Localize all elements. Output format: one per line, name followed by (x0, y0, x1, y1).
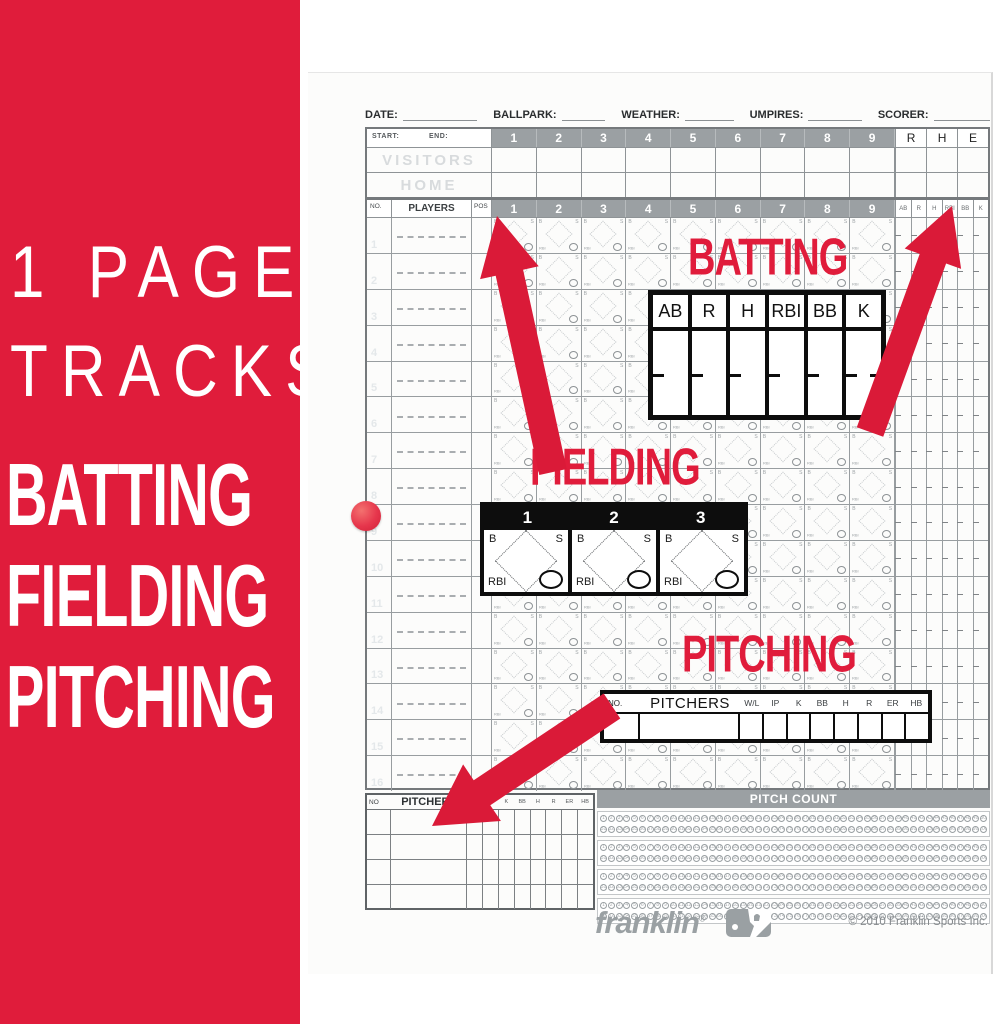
pitch-bubble: 40 (902, 844, 909, 851)
pitch-bubble: 93 (926, 826, 933, 833)
ball-mark: B (673, 219, 676, 225)
diamond-icon (500, 436, 527, 463)
batter-row: 12BSRBIBSRBIBSRBIBSRBIBSRBIBSRBIBSRBIBSR… (367, 612, 988, 648)
diamond-icon (724, 472, 751, 499)
pos-column-header: POS (472, 200, 492, 217)
tally-tick (895, 630, 901, 631)
strike-mark: S (530, 219, 533, 225)
inning-scoring-cell: BSRBI (761, 505, 806, 540)
pitch-bubble: 32 (840, 902, 847, 909)
circle-icon (792, 422, 801, 430)
rbi-mark: RBI (584, 605, 591, 610)
strike-mark: S (530, 255, 533, 261)
linescore-total-header: H (926, 129, 957, 147)
ball-mark: B (584, 614, 587, 620)
circle-icon (613, 602, 622, 610)
pitch-bubble: 78 (809, 826, 816, 833)
pitch-bubble: 75 (786, 826, 793, 833)
inning-score-cell (850, 148, 895, 172)
stat-cell (957, 541, 973, 576)
tally-tick (957, 558, 963, 559)
circle-icon (792, 458, 801, 466)
pitch-bubble: 61 (678, 855, 685, 862)
inning-score-cell (716, 173, 761, 197)
faint-row-number: 16 (371, 777, 383, 789)
inning-scoring-cell: BSRBI (761, 541, 806, 576)
pitch-bubble: 51 (600, 855, 607, 862)
pitch-bubble: 31 (833, 815, 840, 822)
rbi-mark: RBI (584, 712, 591, 717)
inning-scoring-cell: BSRBI (537, 720, 582, 755)
pitch-bubble: 15 (709, 873, 716, 880)
tally-tick (973, 522, 979, 523)
ball-mark: B (763, 542, 766, 548)
pitch-bubble: 38 (887, 873, 894, 880)
rbi-mark: RBI (494, 712, 501, 717)
name-dash-line (397, 559, 467, 561)
pitch-bubble: 60 (670, 884, 677, 891)
pitcher-stat-cell (578, 835, 593, 859)
inning-scoring-cell: BSRBI (537, 397, 582, 432)
name-dash-line (397, 667, 467, 669)
rbi-mark: RBI (488, 576, 506, 588)
circle-icon (658, 243, 667, 251)
strike-mark: S (665, 219, 668, 225)
inning-scoring-cell: BSRBI (850, 613, 895, 648)
stat-cell (973, 577, 989, 612)
diamond-icon (590, 615, 617, 642)
pitch-bubble: 27 (802, 844, 809, 851)
pitch-bubble: 28 (809, 844, 816, 851)
stat-cell (957, 397, 973, 432)
pitch-bubble: 100 (980, 855, 987, 862)
pitch-bubble: 28 (809, 873, 816, 880)
pitch-bubble: 47 (957, 844, 964, 851)
pitch-bubble: 19 (740, 873, 747, 880)
pitch-bubble: 24 (778, 844, 785, 851)
stat-cell (942, 218, 958, 253)
position-cell (472, 613, 492, 648)
inning-scoring-cell: BSRBI (850, 577, 895, 612)
stat-cell (973, 541, 989, 576)
pitch-bubble: 34 (856, 873, 863, 880)
pitch-bubble: 86 (871, 884, 878, 891)
strike-mark: S (530, 650, 533, 656)
circle-icon (882, 566, 891, 574)
diamond-icon (545, 651, 572, 678)
pitch-count-line: 5152535455565758596061626364656667686970… (600, 824, 987, 835)
ball-mark: B (539, 685, 542, 691)
strike-mark: S (844, 470, 847, 476)
position-cell (472, 218, 492, 253)
pitch-bubble: 67 (724, 884, 731, 891)
pitch-bubble: 48 (964, 873, 971, 880)
fielding-callout-box: 123 BSRBIBSRBIBSRBI (480, 502, 748, 596)
pitching-stat-header: R (858, 698, 882, 708)
strike-mark: S (889, 434, 892, 440)
tally-tick (942, 451, 948, 452)
strike-mark: S (889, 614, 892, 620)
rbi-mark: RBI (763, 461, 770, 466)
strike-mark: S (620, 327, 623, 333)
diamond-icon (635, 759, 662, 786)
pitch-bubble: 11 (678, 815, 685, 822)
pitch-bubble: 62 (685, 884, 692, 891)
tally-tick (957, 415, 963, 416)
diamond-icon (814, 472, 841, 499)
diamond-icon (814, 543, 841, 570)
ball-mark: B (807, 578, 810, 584)
rbi-mark: RBI (628, 677, 635, 682)
inning-scoring-cell: BSRBI (850, 756, 895, 791)
name-dash-line (397, 236, 467, 238)
linescore-inning-header: 2 (537, 129, 582, 147)
pitch-bubble: 41 (910, 844, 917, 851)
rbi-mark: RBI (494, 390, 501, 395)
linescore-inning-header: 3 (582, 129, 627, 147)
pitcher-stat-cell (483, 810, 499, 834)
batter-number-cell: 7 (367, 433, 392, 468)
strike-mark: S (575, 363, 578, 369)
pitch-bubble: 38 (887, 902, 894, 909)
batter-number-cell: 8 (367, 469, 392, 504)
ball-mark: B (539, 291, 542, 297)
pitch-bubble: 5 (631, 873, 638, 880)
tally-tick (911, 630, 917, 631)
ball-mark: B (807, 614, 810, 620)
circle-icon (613, 243, 622, 251)
pitchers-table-body (367, 810, 593, 909)
pitch-bubble: 100 (980, 884, 987, 891)
strike-mark: S (732, 533, 739, 545)
pitch-bubble: 38 (887, 844, 894, 851)
rbi-mark: RBI (673, 425, 680, 430)
pitch-bubble: 5 (631, 815, 638, 822)
pitch-bubble: 20 (747, 844, 754, 851)
pitch-bubble: 94 (933, 826, 940, 833)
pitch-bubble: 50 (980, 815, 987, 822)
strike-mark: S (754, 219, 757, 225)
circle-icon (524, 351, 533, 359)
faint-row-number: 8 (371, 490, 377, 502)
strike-mark: S (530, 757, 533, 763)
field-underline (685, 111, 734, 121)
field-label: BALLPARK: (493, 110, 556, 121)
pitch-bubble: 15 (709, 844, 716, 851)
stat-cell (942, 577, 958, 612)
pitch-bubble: 13 (693, 873, 700, 880)
pitch-bubble: 47 (957, 873, 964, 880)
pitch-bubble: 60 (670, 826, 677, 833)
circle-icon (613, 673, 622, 681)
tally-tick (926, 487, 932, 488)
circle-icon (569, 745, 578, 753)
pitch-bubble: 88 (887, 884, 894, 891)
stat-cell (895, 290, 911, 325)
pitch-bubble: 45 (941, 844, 948, 851)
tally-tick (926, 379, 932, 380)
inning-score-cell (537, 173, 582, 197)
pitch-bubble: 49 (972, 844, 979, 851)
pitch-bubble: 29 (817, 902, 824, 909)
strike-mark: S (575, 685, 578, 691)
pitch-bubble: 52 (608, 884, 615, 891)
stat-cell (895, 433, 911, 468)
rbi-mark: RBI (539, 354, 546, 359)
inning-score-cell (492, 148, 537, 172)
pitch-bubble: 51 (600, 884, 607, 891)
stat-cell (957, 254, 973, 289)
inning-scoring-cell: BSRBI (850, 433, 895, 468)
strike-mark: S (620, 614, 623, 620)
strike-mark: S (530, 721, 533, 727)
stat-cell (926, 756, 942, 791)
player-name-cell (392, 577, 472, 612)
pitcher-stat-cell (499, 810, 515, 834)
batter-number-cell: 13 (367, 649, 392, 684)
stat-column-header: RBI (942, 200, 958, 217)
linescore-inning-header: 9 (850, 129, 895, 147)
tally-tick (926, 558, 932, 559)
tally-tick (942, 343, 948, 344)
inning-scoring-cell: BSRBI (671, 756, 716, 791)
pitch-bubble: 85 (864, 884, 871, 891)
rbi-mark: RBI (628, 605, 635, 610)
pitch-bubble: 65 (709, 913, 716, 920)
rbi-mark: RBI (539, 712, 546, 717)
inning-column-header: 7 (761, 200, 806, 217)
pitch-bubble: 8 (654, 815, 661, 822)
ball-mark: B (539, 398, 542, 404)
pitch-bubble: 82 (840, 884, 847, 891)
batter-number-cell: 1 (367, 218, 392, 253)
pitch-bubble: 42 (918, 844, 925, 851)
inning-scoring-cell: BSRBI (492, 218, 537, 253)
batter-number-cell: 12 (367, 613, 392, 648)
pitching-stat-header: W/L (740, 698, 764, 708)
faint-row-number: 15 (371, 741, 383, 753)
pitch-bubble: 53 (616, 884, 623, 891)
pitch-bubble: 21 (755, 815, 762, 822)
pitch-bubble: 4 (623, 815, 630, 822)
pitch-bubble: 26 (794, 844, 801, 851)
stat-cell (926, 433, 942, 468)
rbi-mark: RBI (718, 425, 725, 430)
pitch-bubble: 32 (840, 815, 847, 822)
pitch-bubble: 84 (856, 826, 863, 833)
inning-scoring-cell: BSRBI (761, 577, 806, 612)
stat-cell (973, 362, 989, 397)
pitch-count-line: 1234567891011121314151617181920212223242… (600, 842, 987, 853)
ball-mark: B (718, 757, 721, 763)
circle-icon (703, 602, 712, 610)
pitch-bubble: 46 (949, 844, 956, 851)
rbi-mark: RBI (494, 318, 501, 323)
circle-icon (569, 781, 578, 789)
stat-cell (957, 469, 973, 504)
ball-mark: B (494, 363, 497, 369)
circle-icon (658, 745, 667, 753)
inning-scoring-cell: BSRBI (492, 649, 537, 684)
pitch-bubble: 25 (786, 844, 793, 851)
strike-mark: S (575, 614, 578, 620)
stat-cell (957, 433, 973, 468)
rbi-mark: RBI (807, 569, 814, 574)
circle-icon (524, 781, 533, 789)
pitch-bubble: 58 (654, 855, 661, 862)
pitch-bubble: 85 (864, 855, 871, 862)
pitch-bubble: 67 (724, 855, 731, 862)
tally-tick (926, 522, 932, 523)
pitch-bubble: 82 (840, 826, 847, 833)
ball-mark: B (763, 614, 766, 620)
circle-icon (613, 638, 622, 646)
stat-cell (926, 397, 942, 432)
pitch-bubble: 66 (716, 826, 723, 833)
inning-scoring-cell: BSRBI (850, 541, 895, 576)
pitch-count-line: 5152535455565758596061626364656667686970… (600, 882, 987, 893)
tally-tick (973, 774, 979, 775)
pitch-bubble: 77 (802, 826, 809, 833)
pitch-bubble: 99 (972, 855, 979, 862)
registered-mark: ® (699, 914, 705, 924)
ball-mark: B (807, 542, 810, 548)
pitch-bubble: 80 (825, 884, 832, 891)
pitch-bubble: 43 (926, 902, 933, 909)
pitch-bubble: 19 (740, 844, 747, 851)
pitch-bubble: 2 (608, 815, 615, 822)
pitch-bubble: 6 (639, 815, 646, 822)
stat-cell (895, 362, 911, 397)
pitch-bubble: 49 (972, 902, 979, 909)
strike-mark: S (665, 614, 668, 620)
inning-scoring-cell: BSRBI (626, 218, 671, 253)
rbi-mark: RBI (718, 461, 725, 466)
pitch-bubble: 49 (972, 873, 979, 880)
strike-mark: S (889, 757, 892, 763)
inning-scoring-cell: BSRBI (716, 756, 761, 791)
strike-mark: S (889, 327, 892, 333)
pitcher-stat-cell (467, 885, 483, 909)
diamond-icon (724, 759, 751, 786)
pitch-bubble: 30 (825, 902, 832, 909)
stat-cell (973, 290, 989, 325)
tally-tick (942, 558, 948, 559)
pitch-bubble: 7 (647, 815, 654, 822)
inning-score-cell (492, 173, 537, 197)
rbi-mark: RBI (494, 461, 501, 466)
pitch-bubble: 90 (902, 884, 909, 891)
strike-mark: S (844, 506, 847, 512)
circle-icon (569, 386, 578, 394)
stat-cell (895, 218, 911, 253)
pitcher-stat-cell (499, 835, 515, 859)
faint-row-number: 12 (371, 634, 383, 646)
batter-row: 16BSRBIBSRBIBSRBIBSRBIBSRBIBSRBIBSRBIBSR… (367, 755, 988, 791)
inning-scoring-cell: BSRBI (805, 469, 850, 504)
ball-mark: B (628, 757, 631, 763)
pitch-bubble: 45 (941, 902, 948, 909)
batting-callout-cell (769, 331, 808, 416)
circle-icon (748, 530, 757, 538)
pitch-bubble: 22 (763, 844, 770, 851)
faint-row-number: 6 (371, 418, 377, 430)
tally-tick (926, 415, 932, 416)
circle-icon (569, 638, 578, 646)
pitch-bubble: 21 (755, 873, 762, 880)
inning-column-header: 9 (850, 200, 895, 217)
linescore-row: VISITORS (367, 147, 988, 172)
ball-mark: B (539, 363, 542, 369)
rbi-mark: RBI (673, 677, 680, 682)
rbi-mark: RBI (576, 576, 594, 588)
pitcher-no-cell (367, 860, 391, 884)
inning-score-cell (805, 148, 850, 172)
pitch-bubble: 66 (716, 884, 723, 891)
pitch-bubble: 84 (856, 855, 863, 862)
faint-row-number: 14 (371, 705, 383, 717)
circle-icon (748, 602, 757, 610)
ball-mark: B (852, 506, 855, 512)
pitch-bubble: 86 (871, 855, 878, 862)
diamond-icon (859, 759, 886, 786)
rbi-mark: RBI (673, 282, 680, 287)
player-name-cell (392, 397, 472, 432)
circle-icon (882, 638, 891, 646)
strike-mark: S (530, 614, 533, 620)
pitch-bubble: 33 (848, 873, 855, 880)
circle-icon (748, 422, 757, 430)
pitchers-stat-header: W/L (467, 799, 483, 805)
pitching-stat-cell (906, 714, 928, 741)
diamond-icon (859, 436, 886, 463)
pitch-bubble: 11 (678, 844, 685, 851)
tally-tick (651, 374, 664, 377)
strike-mark: S (620, 757, 623, 763)
rbi-mark: RBI (494, 425, 501, 430)
pitch-bubble: 22 (763, 873, 770, 880)
tally-tick (895, 487, 901, 488)
circle-icon (882, 243, 891, 251)
player-name-cell (392, 684, 472, 719)
circle-icon (569, 243, 578, 251)
rbi-mark: RBI (494, 354, 501, 359)
pitch-bubble: 40 (902, 902, 909, 909)
pitch-bubble: 58 (654, 826, 661, 833)
circle-icon (569, 315, 578, 323)
rbi-mark: RBI (584, 784, 591, 789)
ball-mark: B (494, 614, 497, 620)
pitch-bubble: 74 (778, 884, 785, 891)
pitcher-stat-cell (531, 885, 547, 909)
ball-mark: B (584, 327, 587, 333)
stat-cell (942, 756, 958, 791)
circle-icon (792, 781, 801, 789)
tally-tick (973, 594, 979, 595)
stat-cell (895, 505, 911, 540)
circle-icon (569, 673, 578, 681)
ball-mark: B (494, 398, 497, 404)
stat-cell (942, 684, 958, 719)
rbi-mark: RBI (539, 605, 546, 610)
rbi-mark: RBI (852, 497, 859, 502)
pitch-bubble: 7 (647, 873, 654, 880)
strike-mark: S (620, 398, 623, 404)
diamond-icon (814, 436, 841, 463)
inning-score-cell (626, 173, 671, 197)
batting-callout-header-cell: H (730, 295, 769, 327)
ball-mark: B (539, 255, 542, 261)
